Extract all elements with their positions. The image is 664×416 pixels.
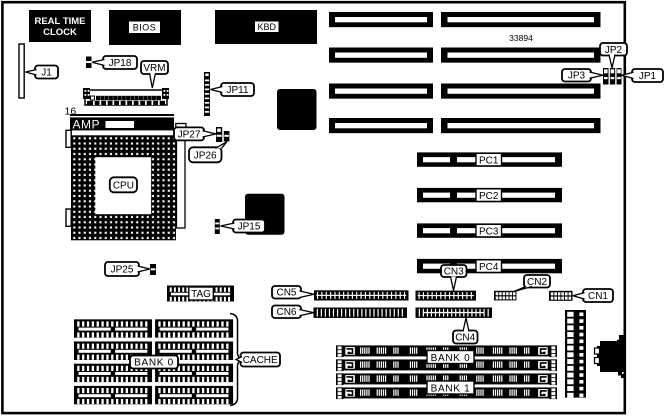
svg-text:BIOS: BIOS: [133, 23, 157, 33]
svg-text:CN1: CN1: [588, 291, 608, 302]
svg-text:33894: 33894: [509, 33, 533, 43]
svg-text:BANK 0: BANK 0: [431, 353, 471, 364]
svg-text:JP27: JP27: [178, 129, 201, 140]
svg-text:JP18: JP18: [109, 58, 132, 69]
svg-text:CN5: CN5: [276, 288, 296, 299]
svg-text:PC4: PC4: [479, 262, 499, 273]
svg-text:REAL TIME: REAL TIME: [34, 16, 85, 27]
svg-text:JP26: JP26: [194, 151, 217, 162]
svg-text:KBD: KBD: [258, 22, 277, 32]
svg-text:VRM: VRM: [143, 63, 165, 74]
svg-text:CN3: CN3: [444, 266, 464, 277]
svg-text:CN2: CN2: [527, 277, 547, 288]
svg-text:CN4: CN4: [455, 333, 475, 344]
svg-text:BANK 0: BANK 0: [134, 358, 174, 369]
svg-text:J1: J1: [41, 68, 52, 79]
svg-text:PC3: PC3: [479, 226, 499, 237]
svg-text:BANK 1: BANK 1: [431, 383, 471, 394]
svg-text:PC2: PC2: [479, 191, 499, 202]
svg-text:PC1: PC1: [479, 155, 499, 166]
svg-text:CACHE: CACHE: [243, 355, 278, 366]
svg-text:JP15: JP15: [238, 222, 261, 233]
svg-text:TAG: TAG: [191, 289, 211, 300]
svg-text:CLOCK: CLOCK: [43, 27, 77, 38]
svg-text:JP11: JP11: [226, 85, 248, 96]
svg-text:CN6: CN6: [276, 307, 296, 318]
svg-text:JP2: JP2: [605, 45, 623, 56]
svg-text:JP1: JP1: [639, 71, 657, 82]
svg-text:JP25: JP25: [111, 265, 134, 276]
svg-text:AMP: AMP: [73, 118, 101, 132]
svg-text:JP3: JP3: [568, 71, 586, 82]
svg-text:CPU: CPU: [113, 181, 134, 192]
